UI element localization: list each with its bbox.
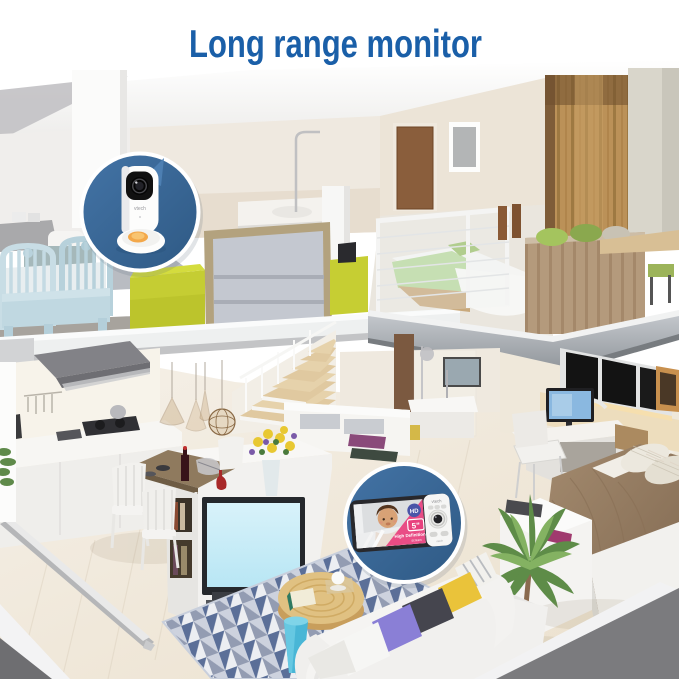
svg-text:HD: HD — [410, 508, 420, 515]
svg-text:vtech: vtech — [436, 539, 443, 544]
svg-text:Long range monitor: Long range monitor — [189, 23, 482, 66]
svg-text:vtech: vtech — [134, 206, 146, 212]
svg-text:vtech: vtech — [431, 498, 442, 504]
svg-text:5": 5" — [411, 521, 420, 531]
svg-text:screen: screen — [411, 538, 422, 543]
